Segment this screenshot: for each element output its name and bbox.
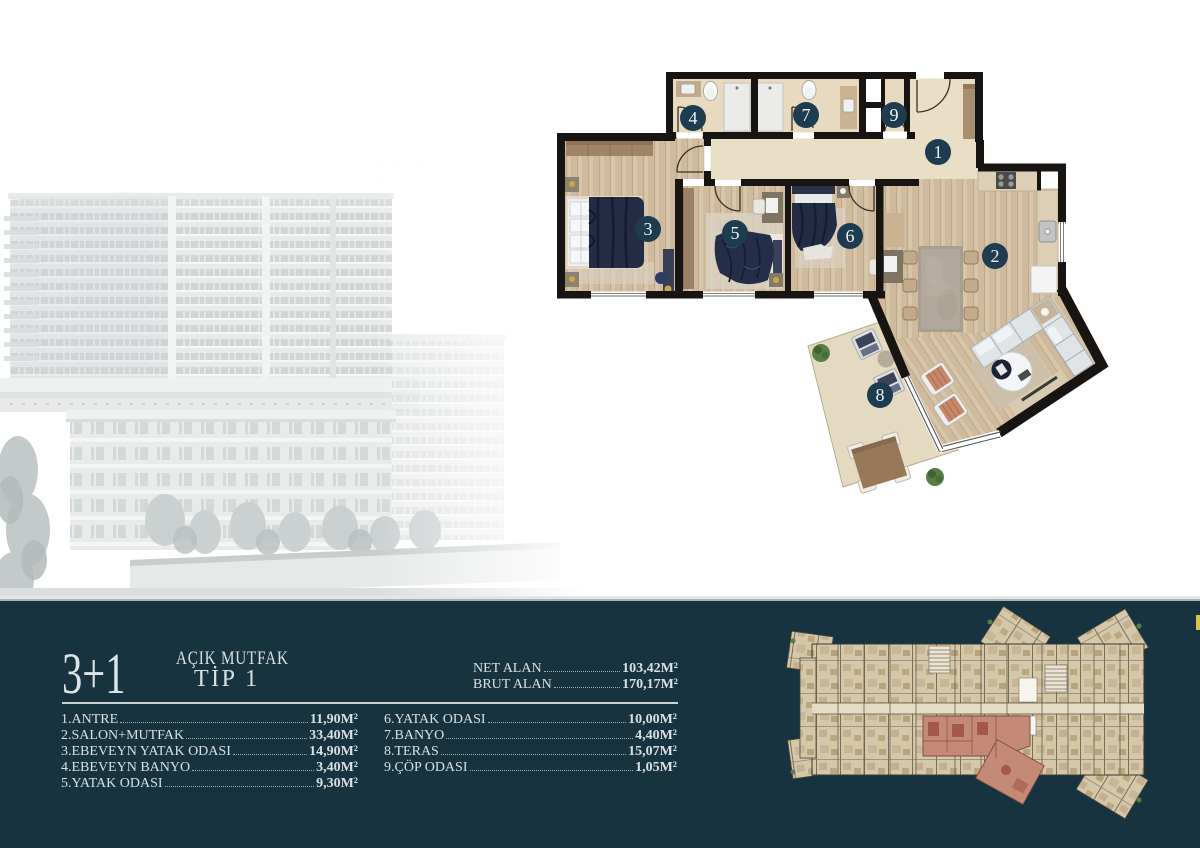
svg-text:2: 2 <box>991 246 1000 266</box>
svg-text:9: 9 <box>890 105 899 125</box>
svg-text:7: 7 <box>802 105 811 125</box>
svg-text:8: 8 <box>876 385 885 405</box>
svg-text:3: 3 <box>644 219 653 239</box>
svg-text:6: 6 <box>846 226 855 246</box>
svg-text:4: 4 <box>689 108 698 128</box>
svg-text:5: 5 <box>731 223 740 243</box>
svg-text:1: 1 <box>934 142 943 162</box>
